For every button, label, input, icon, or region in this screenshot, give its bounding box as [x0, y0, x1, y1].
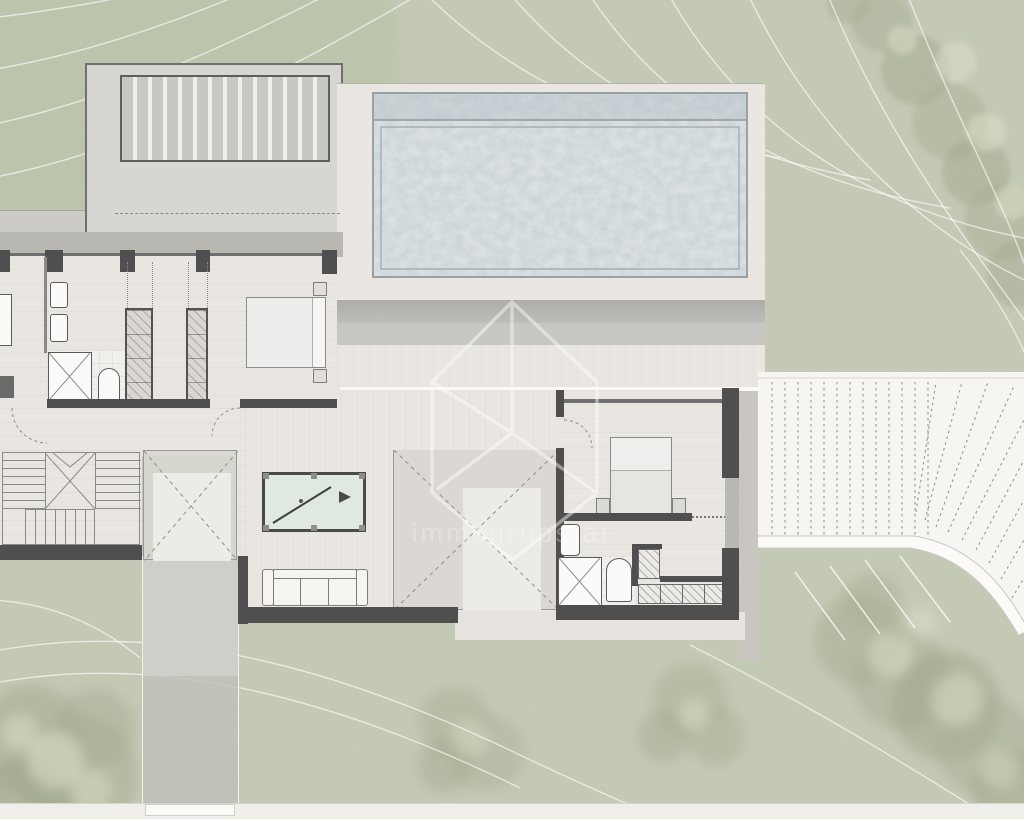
cabinet-left-edge [0, 376, 14, 398]
partition-bath-left [44, 257, 47, 353]
nightstand [672, 498, 686, 514]
pocket [311, 525, 317, 531]
wood-deck-slats [120, 75, 330, 162]
bridge-surface [758, 372, 1024, 628]
pocket [359, 473, 365, 479]
stair-flight-right [95, 453, 141, 509]
sink-1 [50, 282, 68, 308]
billiard-cue-and-rack [265, 475, 363, 529]
terrace-dashed-line [115, 213, 340, 214]
wall-south-east-wing [556, 605, 739, 620]
pocket [263, 525, 269, 531]
wall-east-lower [722, 548, 739, 612]
pocket [263, 473, 269, 479]
wall-under-stairs [0, 545, 142, 560]
bed-pillow-band [312, 298, 325, 367]
billiard-table [262, 472, 366, 532]
pool-water-texture [374, 94, 746, 276]
wall-pier [45, 250, 63, 272]
swimming-pool [372, 92, 748, 278]
bed-2 [610, 437, 672, 514]
stair-flight-left [3, 453, 46, 509]
bed-1 [246, 297, 326, 368]
watermark-text: immogrupstar [392, 518, 632, 552]
floor-plan-canvas: immogrupstar [0, 0, 1024, 819]
wall-east-upper [722, 388, 739, 478]
driveway-light-section [143, 556, 238, 676]
toilet-1 [98, 368, 120, 402]
closet-column-2 [186, 308, 208, 406]
closet-column-1 [125, 308, 153, 406]
sofa-arm-right [356, 569, 368, 606]
staircase [2, 452, 140, 545]
skylight-void [143, 450, 237, 560]
sofa-seat [300, 578, 329, 606]
timber-bridge-driveway [740, 360, 1024, 700]
shower-1 [48, 352, 92, 402]
sofa-seat [273, 578, 301, 606]
sink-2 [50, 314, 68, 342]
wall-south-living [245, 607, 458, 623]
stepped-closet-row [638, 584, 728, 604]
nightstand [313, 369, 327, 383]
pocket [311, 473, 317, 479]
driveway-margin-cell [145, 804, 235, 816]
driveway-strip [142, 556, 239, 819]
wall-pier [0, 250, 10, 272]
pocket [359, 525, 365, 531]
bed-blanket [611, 470, 671, 513]
closet-guide-2 [188, 262, 208, 308]
stepped-closet-wall-mid [660, 576, 728, 582]
stair-landing [45, 453, 96, 509]
closet-guide-1 [127, 262, 153, 308]
sofa-seat [328, 578, 357, 606]
desk-left-edge [0, 294, 12, 346]
stepped-closet-cell-tall [638, 549, 660, 579]
wall-pier [322, 250, 337, 274]
stair-flight-bottom [25, 509, 95, 545]
window-east [725, 478, 739, 548]
sofa [262, 569, 368, 606]
tree-cluster-bottom-left [0, 685, 138, 819]
nightstand [313, 282, 327, 296]
hall-strip [237, 450, 245, 556]
